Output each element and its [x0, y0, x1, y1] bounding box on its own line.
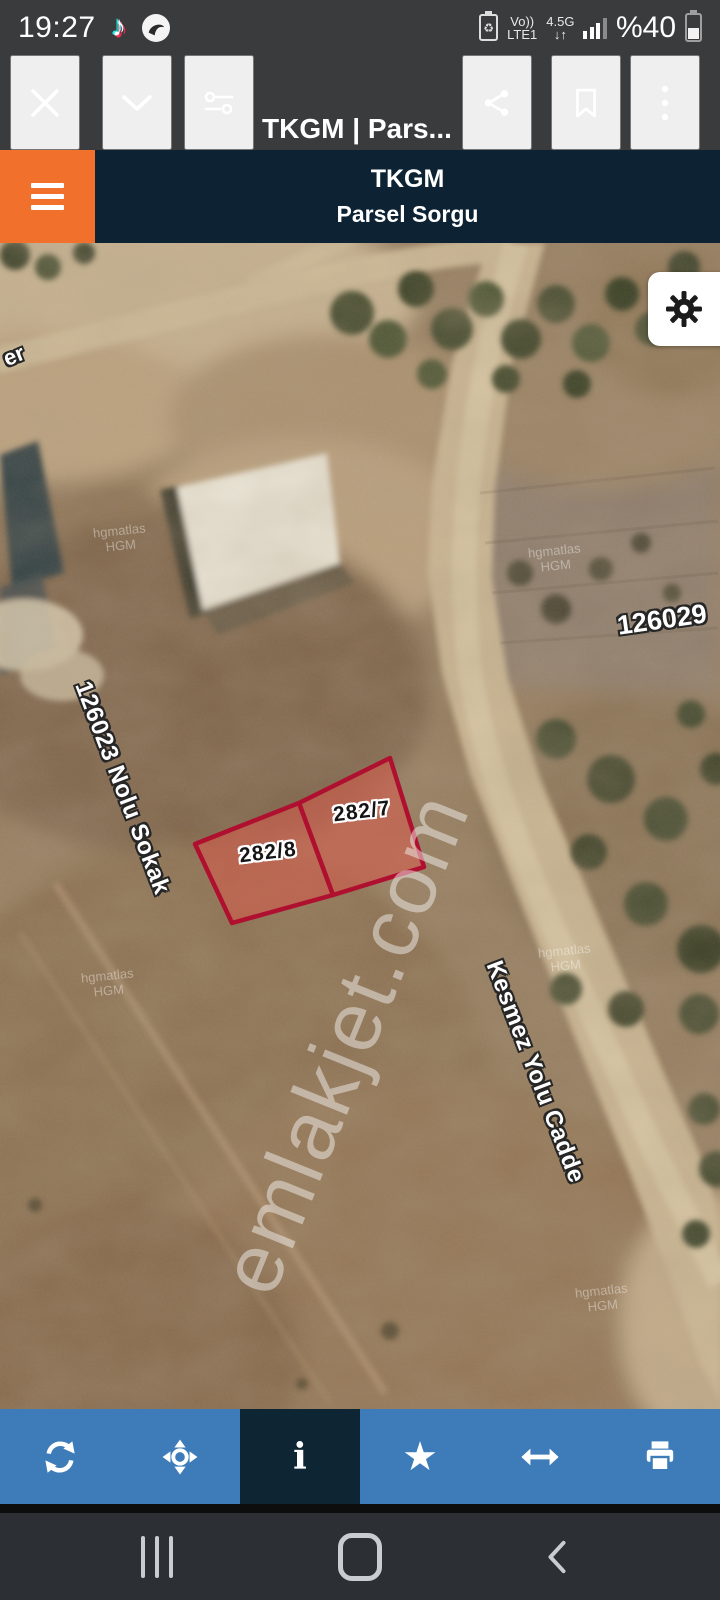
overflow-menu-icon[interactable] [630, 55, 700, 150]
app-title-block: TKGM Parsel Sorgu [95, 150, 720, 243]
status-time: 19:27 [18, 11, 96, 45]
imagery-credit: hgmatlasHGM [92, 520, 148, 555]
resize-horizontal-icon [520, 1445, 560, 1469]
favorite-button[interactable]: ★ [360, 1409, 480, 1504]
status-bar: 19:27 ♪ ♻ Vo))LTE1 4.5G↓↑ %40 [0, 0, 720, 55]
recents-button[interactable] [87, 1513, 227, 1600]
network-type-indicator: 4.5G↓↑ [546, 15, 574, 41]
imagery-credit: hgmatlasHGM [527, 540, 583, 575]
map-toolbar: i ★ [0, 1409, 720, 1504]
status-right: ♻ Vo))LTE1 4.5G↓↑ %40 [479, 11, 702, 45]
refresh-icon [42, 1439, 78, 1475]
close-icon[interactable] [10, 55, 80, 150]
volte-indicator: Vo))LTE1 [507, 15, 537, 41]
back-button[interactable] [487, 1513, 627, 1600]
back-chevron-icon [545, 1539, 569, 1575]
satellite-imagery [0, 243, 720, 1409]
info-button[interactable]: i [240, 1409, 360, 1504]
map-view[interactable]: emlakjet.com hgmatlasHGM hgmatlasHGM hgm… [0, 243, 720, 1409]
chevron-down-icon[interactable] [102, 55, 172, 150]
print-icon [642, 1439, 678, 1475]
home-button[interactable] [290, 1513, 430, 1600]
locate-button[interactable] [120, 1409, 240, 1504]
info-icon: i [293, 1439, 307, 1475]
battery-icon [685, 13, 702, 42]
share-icon[interactable] [462, 55, 532, 150]
app-header: TKGM Parsel Sorgu [0, 150, 720, 243]
app-title: TKGM [371, 165, 445, 194]
signal-strength-icon [583, 17, 607, 39]
home-icon [338, 1533, 382, 1581]
locate-icon [162, 1439, 198, 1475]
android-navigation-bar [0, 1513, 720, 1600]
imagery-credit: hgmatlasHGM [574, 1280, 630, 1315]
status-left: 19:27 ♪ [18, 11, 170, 45]
phone-screen: 19:27 ♪ ♻ Vo))LTE1 4.5G↓↑ %40 [0, 0, 720, 1600]
imagery-credit: hgmatlasHGM [537, 940, 593, 975]
page-title: TKGM | Pars... [254, 113, 466, 145]
browser-toolbar: TKGM | Pars... selsorgu.tkgm.gov.tr [0, 55, 720, 150]
recents-icon [141, 1536, 173, 1578]
menu-button[interactable] [0, 150, 95, 243]
app-subtitle: Parsel Sorgu [337, 201, 479, 228]
gear-icon [664, 289, 704, 329]
map-settings-button[interactable] [648, 272, 720, 346]
tiktok-notification-icon: ♪ [112, 13, 127, 42]
refresh-button[interactable] [0, 1409, 120, 1504]
bookmark-icon[interactable] [551, 55, 621, 150]
screen-divider [0, 1504, 720, 1513]
print-button[interactable] [600, 1409, 720, 1504]
app-notification-icon [142, 14, 170, 42]
measure-button[interactable] [480, 1409, 600, 1504]
tune-controls-icon[interactable] [184, 55, 254, 150]
imagery-credit: hgmatlasHGM [80, 965, 136, 1000]
star-icon: ★ [402, 1437, 438, 1477]
battery-percent: %40 [616, 11, 676, 45]
battery-saver-icon: ♻ [479, 14, 498, 41]
